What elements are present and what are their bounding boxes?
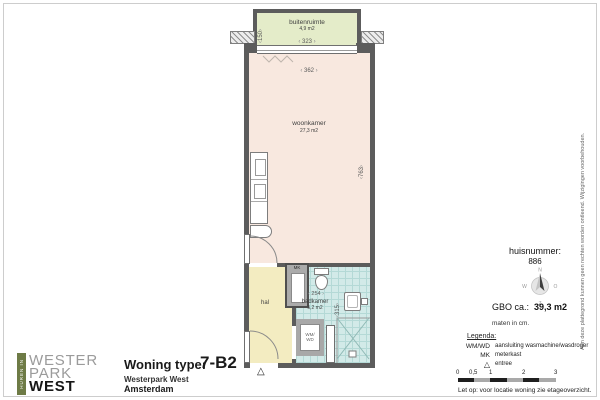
legend-key-wmwd: WM/WD bbox=[456, 343, 490, 350]
dim-badkamer-depth: 315 bbox=[333, 295, 343, 325]
logo-line-west: WEST bbox=[29, 379, 76, 394]
dim-woonkamer-depth: 763 bbox=[357, 157, 367, 187]
scale-tick: 2 bbox=[522, 370, 525, 376]
door-arc-entrance bbox=[250, 331, 278, 359]
units-note: maten in cm. bbox=[492, 320, 529, 327]
scale-bar-segment bbox=[523, 378, 539, 382]
entree-triangle-icon: △ bbox=[257, 366, 265, 377]
compass-north: N bbox=[538, 268, 542, 274]
scale-tick: 0 bbox=[456, 370, 459, 376]
gbo-value: 39,3 m2 bbox=[534, 302, 567, 312]
logo-vertical-text: HUREN IN bbox=[19, 359, 24, 389]
legend-key-mk: MK bbox=[456, 352, 490, 359]
shower-drain bbox=[349, 351, 356, 357]
hal-label: hal bbox=[252, 300, 278, 307]
logo-vertical-band: HUREN IN bbox=[17, 353, 26, 395]
compass-east: O bbox=[554, 284, 558, 290]
footer-note: Let op: voor locatie woning zie etageove… bbox=[458, 387, 591, 394]
gbo-line: GBO ca.: 39,3 m2 bbox=[492, 302, 567, 312]
woonkamer-area: 27,3 m2 bbox=[269, 129, 349, 135]
legend-entree-triangle-icon: △ bbox=[456, 360, 490, 369]
buitenruimte-area: 4,9 m2 bbox=[270, 27, 344, 33]
compass-west: W bbox=[522, 284, 527, 290]
project-name: Westerpark West bbox=[124, 375, 189, 384]
scale-bar-segment bbox=[474, 378, 490, 382]
woonkamer-label: woonkamer bbox=[269, 120, 349, 127]
scale-bar-segment bbox=[458, 378, 474, 382]
scale-bar-segment bbox=[490, 378, 507, 382]
dim-buitenruimte-depth: 150 bbox=[256, 21, 266, 51]
huisnummer-value: 886 bbox=[475, 257, 595, 266]
badkamer-area: 5,2 m2 bbox=[294, 306, 336, 312]
dim-woonkamer-width: 362 bbox=[279, 68, 339, 74]
curtain-symbol bbox=[263, 56, 293, 62]
floorplan-page: MK WM/ WD buitenruimte 4,9 m2 323 150 36… bbox=[0, 0, 600, 400]
woning-type-label: Woning type: bbox=[124, 357, 206, 372]
legend-desc-mk: meterkast bbox=[495, 352, 595, 358]
scale-tick: 3 bbox=[554, 370, 557, 376]
legend-desc-entree: entree bbox=[495, 361, 595, 367]
dim-badkamer-width: 254 bbox=[296, 292, 336, 298]
compass-rose: N O Z W bbox=[520, 266, 560, 306]
dim-buitenruimte-width: 323 bbox=[277, 39, 337, 45]
scale-bar-segment bbox=[507, 378, 523, 382]
huisnummer-label: huisnummer: bbox=[475, 246, 595, 256]
plan-linework bbox=[0, 0, 600, 400]
woning-type-code: 7-B2 bbox=[200, 353, 237, 373]
disclaimer-vertical-text: Aan deze plattegrond kunnen geen rechten… bbox=[580, 120, 586, 350]
scale-tick: 1 bbox=[489, 370, 492, 376]
gbo-label: GBO ca.: bbox=[492, 302, 529, 312]
legend-title: Legenda: bbox=[467, 333, 496, 340]
scale-tick: 0,5 bbox=[469, 370, 477, 376]
door-arc-hal bbox=[250, 236, 277, 263]
scale-bar-segment bbox=[539, 378, 556, 382]
city-name: Amsterdam bbox=[124, 384, 174, 394]
